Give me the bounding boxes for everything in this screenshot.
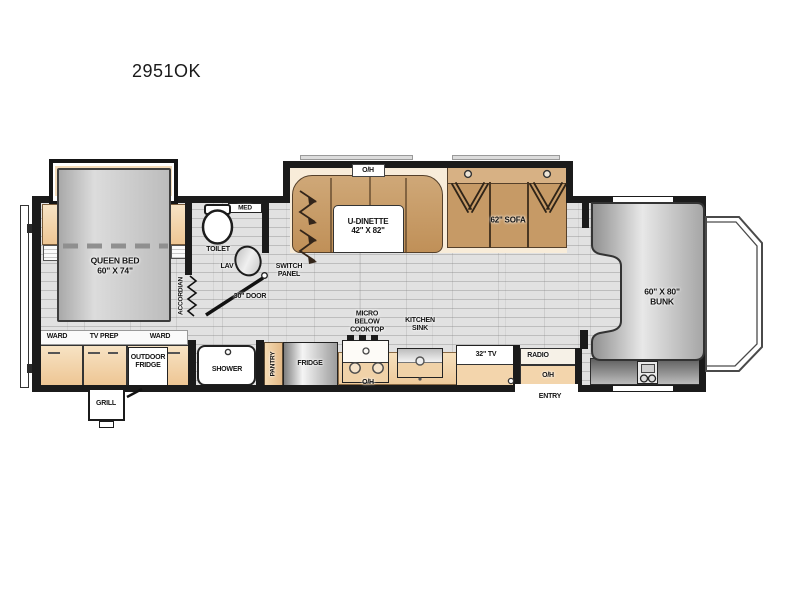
kitchen-sink: [397, 348, 443, 378]
cabinet-divider-1: [82, 345, 84, 385]
post-tv-right: [513, 345, 520, 388]
drawer-pull-2: [88, 352, 100, 354]
u-dinette-label: U-DINETTE42" X 82": [348, 218, 389, 236]
dinette-cushion-line-3: [369, 177, 371, 206]
wall-top-a: [32, 196, 49, 203]
windshield-icon: [706, 217, 762, 371]
slide-trim-dinette: [300, 155, 413, 160]
cab-window-top: [613, 197, 673, 202]
sink-basin-top: [398, 349, 442, 363]
lav-label: LAV: [221, 263, 234, 271]
oh-dinette-label: O/H: [362, 167, 374, 175]
nightstand-left-drawers: [43, 245, 58, 261]
slide-trim-sofa: [452, 155, 560, 160]
shower-label: SHOWER: [212, 366, 242, 374]
drawer-pull-1: [48, 352, 60, 354]
dash-console: [637, 361, 658, 384]
ward-left-label: WARD: [47, 333, 68, 341]
tv-prep-label: TV PREP: [90, 333, 119, 341]
queen-bed: [57, 168, 171, 322]
radio-label: RADIO: [527, 352, 549, 360]
slide-wall-left: [283, 161, 290, 203]
oh-cooktop-label: O/H: [362, 379, 374, 387]
queen-bed-label: QUEEN BED60" X 74": [91, 256, 140, 275]
accordian-label: ACCORDIAN: [177, 277, 184, 315]
pantry-label: PANTRY: [269, 352, 276, 377]
sofa-divider-2: [527, 182, 529, 248]
drawer-pull-4: [168, 352, 180, 354]
toilet-label: TOILET: [206, 246, 230, 254]
nightstand-right-drawers: [171, 245, 186, 259]
med-label: MED: [238, 204, 252, 211]
sofa-back: [448, 168, 566, 184]
wall-front: [699, 196, 706, 392]
drawer-pull-3: [108, 352, 118, 354]
post-entry-right: [575, 348, 582, 388]
dinette-cushion-line-1: [330, 178, 332, 252]
bunk-label: 60" X 80"BUNK: [644, 287, 680, 306]
shower-post-right: [256, 340, 264, 386]
switch-panel-label: SWITCHPANEL: [276, 263, 302, 279]
grill-stub: [99, 421, 114, 428]
grill-label: GRILL: [96, 400, 116, 408]
ward-right-label: WARD: [150, 333, 171, 341]
post-cab-left: [580, 330, 588, 349]
oh-entry-label: O/H: [542, 372, 554, 380]
model-title: 2951OK: [132, 62, 201, 80]
fridge-label: FRIDGE: [297, 360, 322, 368]
outdoor-fridge-label: OUTDOORFRIDGE: [131, 354, 165, 370]
shower-post-left: [188, 340, 196, 386]
cab-window-bottom: [613, 386, 673, 391]
bath-wall-left: [185, 203, 192, 275]
nightstand-left: [42, 204, 58, 245]
entry-label: ENTRY: [539, 393, 561, 401]
post-cab-top: [582, 203, 589, 228]
dash-console-tray: [641, 364, 655, 373]
dinette-cushion-line-2: [405, 178, 407, 252]
slide-wall-top: [283, 161, 573, 168]
bath-wall-right: [262, 203, 269, 253]
cooktop: [342, 340, 389, 383]
wall-top-b: [178, 196, 290, 203]
tv-label: 32" TV: [476, 351, 497, 359]
kitchen-sink-label: KITCHENSINK: [405, 317, 435, 333]
micro-cooktop-label: MICROBELOWCOOKTOP: [350, 310, 384, 333]
door-30-label: 30" DOOR: [234, 293, 266, 301]
entry-opening: [515, 384, 578, 393]
sofa-label: 62" SOFA: [490, 217, 525, 226]
sofa: [447, 167, 567, 248]
wall-left: [32, 196, 41, 392]
slide-wall-right: [566, 161, 573, 203]
floorplan-canvas: 2951OK: [0, 0, 800, 600]
